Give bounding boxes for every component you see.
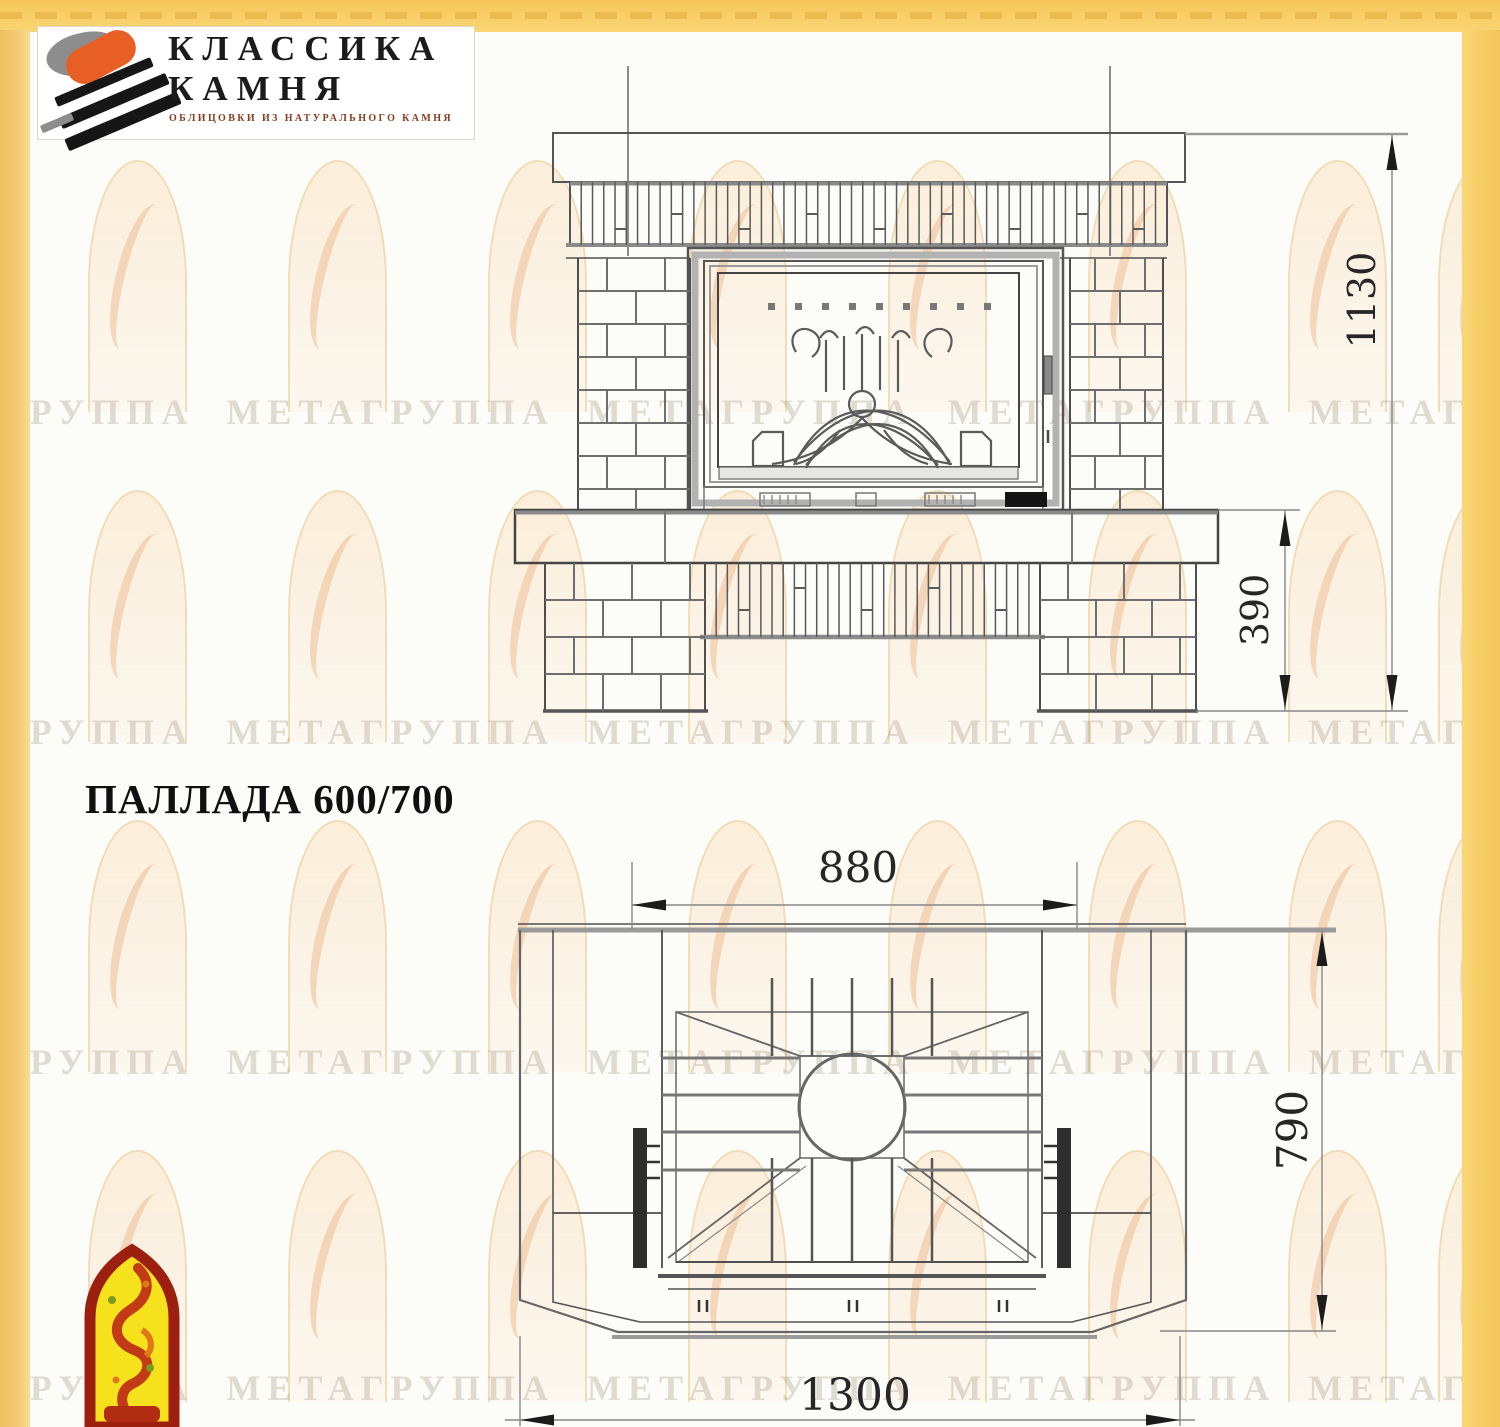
spec-sheet-page: ГРУППА МЕТАГРУППА МЕТАГРУППА МЕТАГРУППА … bbox=[0, 0, 1500, 1427]
fire-grate bbox=[753, 327, 991, 468]
dim-overall-height: 1130 bbox=[1340, 252, 1384, 349]
dim-firebox-width: 880 bbox=[818, 843, 898, 892]
meta-emblem bbox=[82, 1240, 182, 1427]
vent-black bbox=[1005, 492, 1047, 507]
dim-overall-width: 1300 bbox=[799, 1370, 911, 1421]
technical-drawing: 1130 390 880 790 1300 bbox=[0, 0, 1500, 1427]
door-handle bbox=[1044, 356, 1052, 394]
dimension-arrows bbox=[520, 136, 1398, 1426]
plan-view bbox=[505, 862, 1336, 1426]
dim-depth: 790 bbox=[1268, 1090, 1317, 1170]
dim-base-height: 390 bbox=[1233, 574, 1277, 647]
